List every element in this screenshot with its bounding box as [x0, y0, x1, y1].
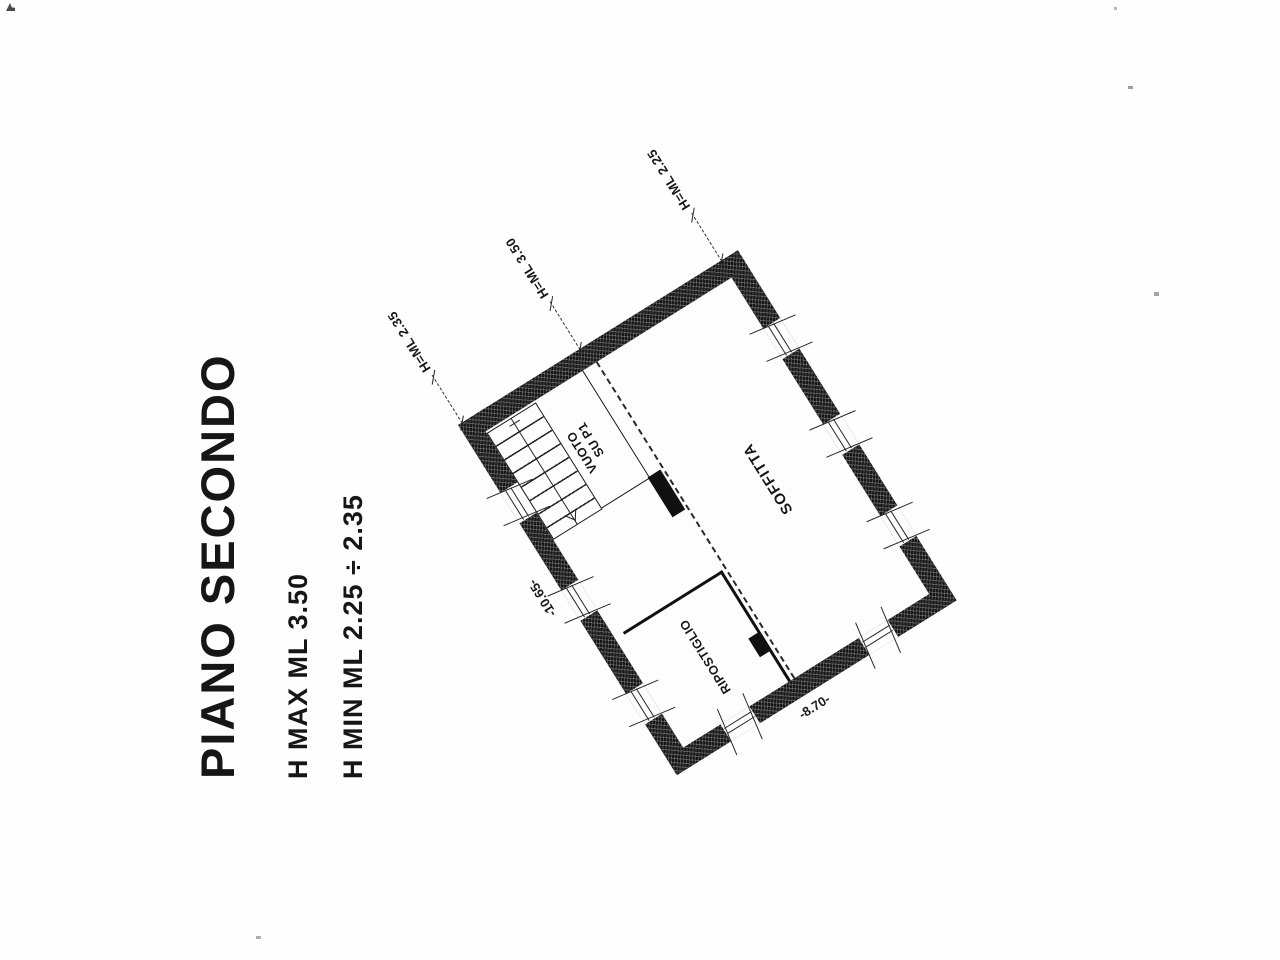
height-label-ridge: H=ML 3.50: [502, 235, 551, 301]
scan-speck: [1114, 7, 1117, 10]
scanned-floor-plan-page: PIANO SECONDO H MAX ML 3.50 H MIN ML 2.2…: [0, 0, 1280, 960]
scan-speck: [1154, 292, 1159, 296]
height-label-left-eave: H=ML 2.35: [384, 309, 433, 375]
scan-speck: [256, 936, 261, 939]
height-witness-line: [691, 213, 724, 266]
scan-speck: [1128, 86, 1133, 89]
floor-plan: SOFFITTA RIPOSTIGLIO VUOTO SU P1 -10.65-…: [458, 250, 957, 775]
scan-speck: [6, 3, 15, 11]
h-min-note: H MIN ML 2.25 ÷ 2.35: [338, 494, 369, 779]
dimension-side: -10.65-: [525, 577, 560, 620]
height-witness-line: [432, 375, 465, 428]
h-max-note: H MAX ML 3.50: [283, 573, 314, 779]
height-witness-line: [550, 302, 583, 355]
height-label-right-eave: H=ML 2.25: [644, 147, 693, 213]
page-title: PIANO SECONDO: [190, 353, 245, 779]
